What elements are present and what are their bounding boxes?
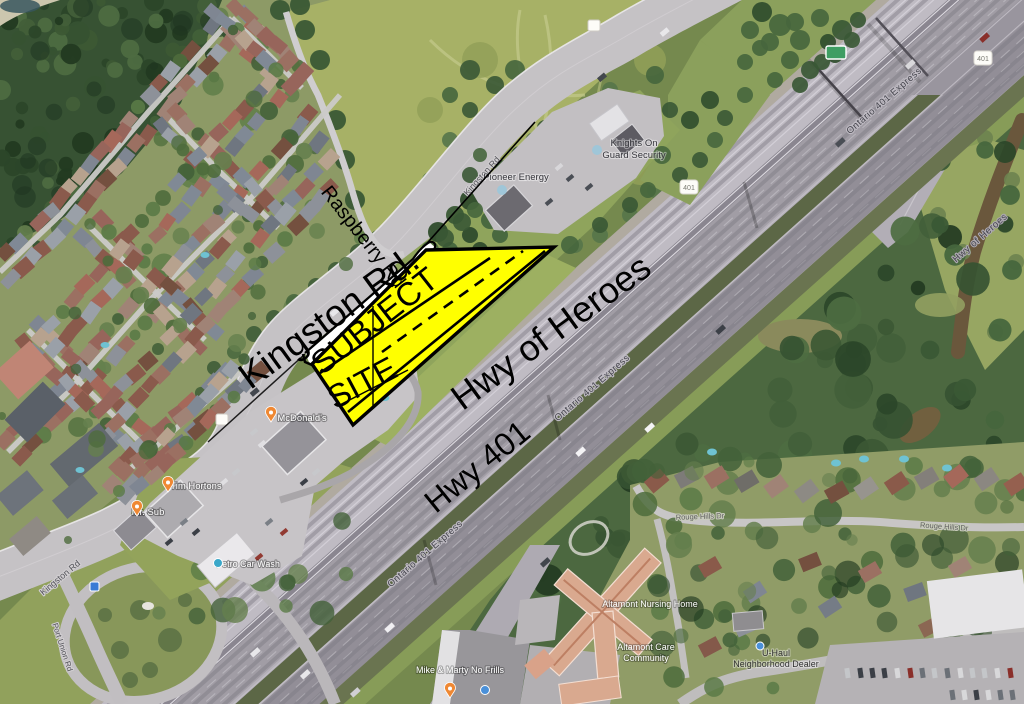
svg-text:Guard Security: Guard Security: [602, 150, 666, 161]
svg-text:Pioneer Energy: Pioneer Energy: [483, 172, 549, 183]
svg-text:Tim Hortons: Tim Hortons: [170, 481, 222, 492]
svg-text:Altamont Nursing Home: Altamont Nursing Home: [602, 599, 698, 609]
svg-text:401: 401: [683, 185, 695, 192]
svg-text:401: 401: [977, 56, 989, 63]
svg-text:Knights On: Knights On: [611, 138, 658, 149]
svg-text:Neighborhood Dealer: Neighborhood Dealer: [733, 659, 819, 669]
svg-text:Mike & Marty No Frills: Mike & Marty No Frills: [416, 665, 505, 675]
svg-text:Petro Car Wash: Petro Car Wash: [216, 559, 280, 569]
svg-text:Altamont Care: Altamont Care: [617, 642, 675, 652]
svg-text:Community: Community: [623, 653, 669, 663]
svg-text:U-Haul: U-Haul: [762, 648, 790, 658]
svg-text:Rouge Hills Dr: Rouge Hills Dr: [676, 511, 725, 522]
svg-text:McDonald's: McDonald's: [277, 413, 327, 424]
